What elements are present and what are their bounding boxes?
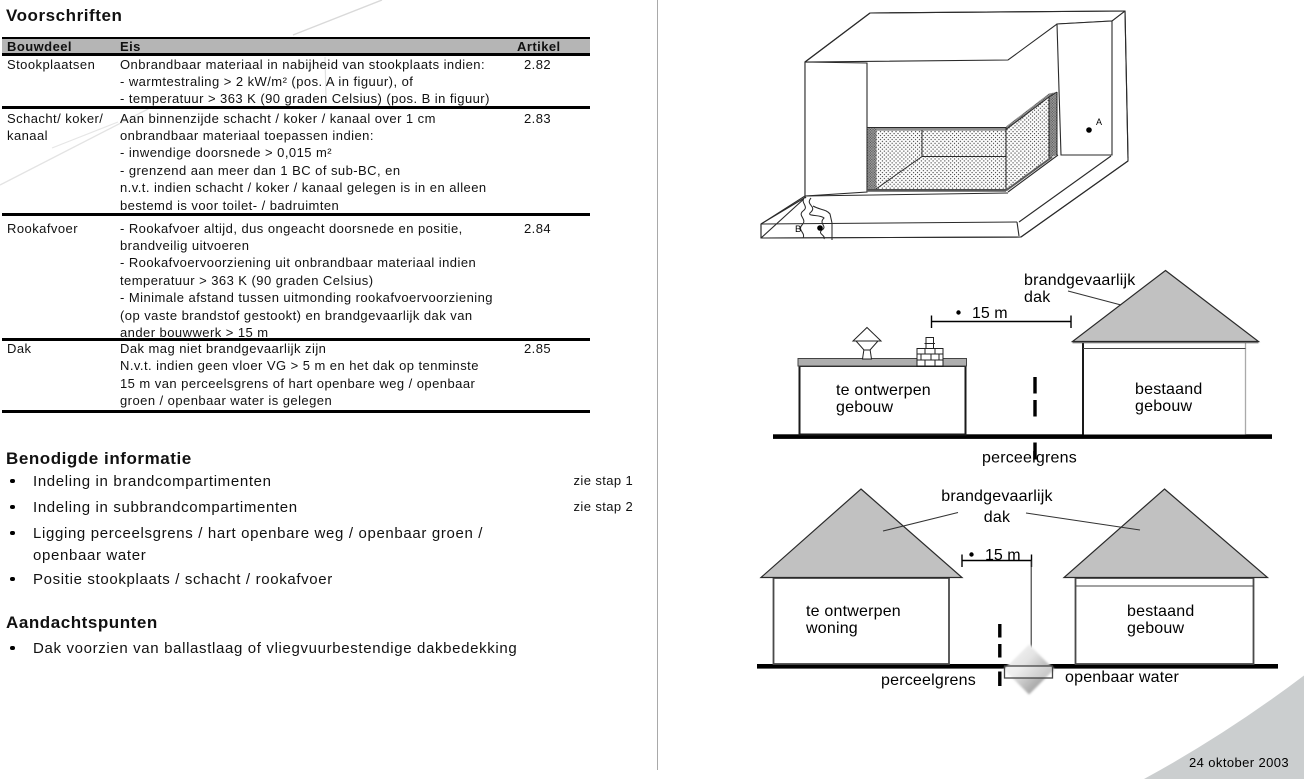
svg-text:perceelgrens: perceelgrens — [982, 450, 1077, 467]
svg-text:dak: dak — [1024, 289, 1051, 306]
svg-text:gebouw: gebouw — [836, 399, 893, 416]
svg-text:24 oktober 2003: 24 oktober 2003 — [1189, 755, 1289, 770]
svg-text:dak: dak — [984, 509, 1011, 526]
svg-text:B: B — [795, 224, 801, 235]
svg-text:A: A — [1096, 117, 1102, 127]
svg-text:brandgevaarlijk: brandgevaarlijk — [1024, 272, 1136, 289]
svg-text:bestaand: bestaand — [1127, 603, 1194, 620]
svg-text:gebouw: gebouw — [1127, 620, 1184, 637]
svg-text:openbaar water: openbaar water — [1065, 669, 1179, 686]
svg-text:te ontwerpen: te ontwerpen — [806, 603, 901, 620]
svg-text:woning: woning — [805, 620, 858, 637]
svg-text:te ontwerpen: te ontwerpen — [836, 382, 931, 399]
svg-text:15 m: 15 m — [972, 305, 1008, 322]
svg-text:15 m: 15 m — [985, 547, 1021, 564]
svg-text:gebouw: gebouw — [1135, 398, 1192, 415]
svg-text:bestaand: bestaand — [1135, 381, 1202, 398]
svg-text:brandgevaarlijk: brandgevaarlijk — [941, 488, 1053, 505]
svg-text:perceelgrens: perceelgrens — [881, 672, 976, 689]
